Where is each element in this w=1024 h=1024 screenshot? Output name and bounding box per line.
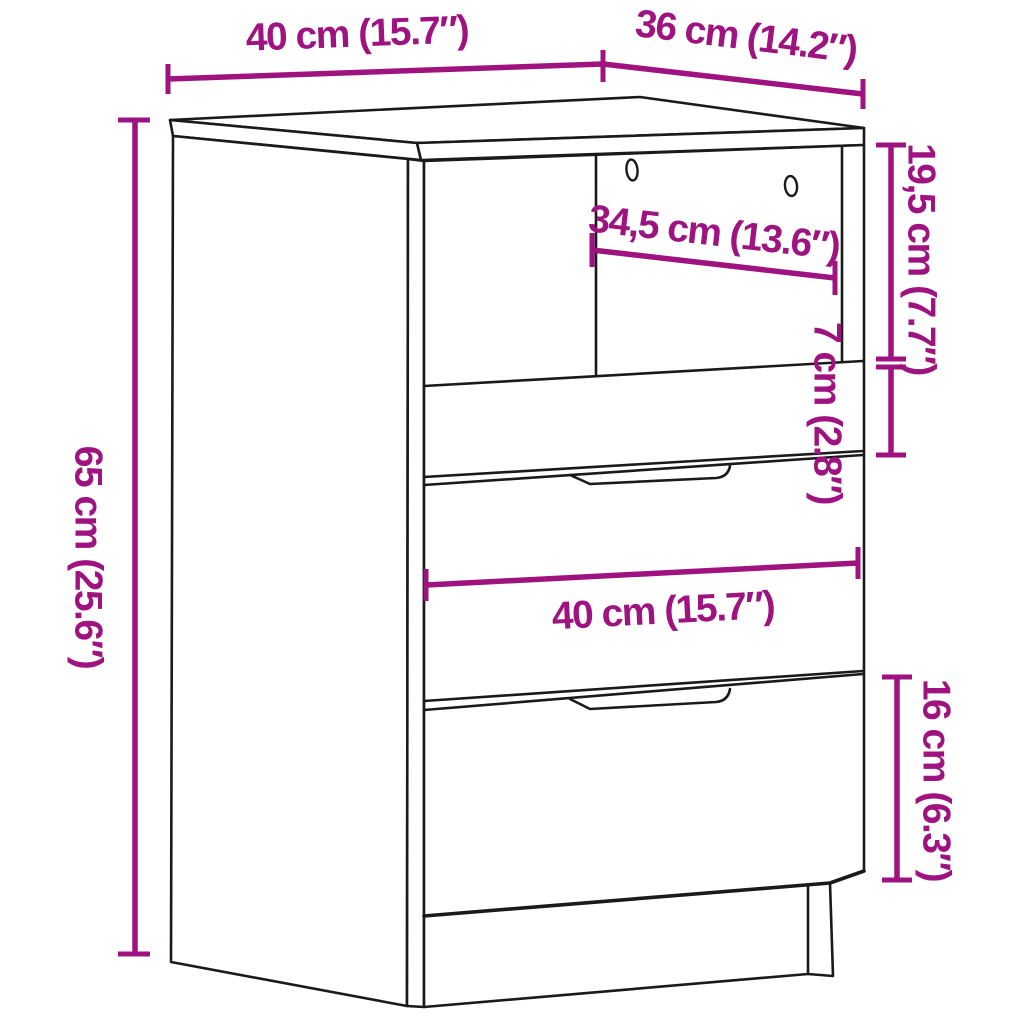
dim-label-bottom-drawer-height: 16 cm (6.3″) <box>915 679 958 882</box>
dim-label-top-depth: 36 cm (14.2″) <box>633 2 860 72</box>
cabinet-front-left-corner <box>407 159 424 1007</box>
screw-hole-right <box>784 175 798 196</box>
dim-label-small-drawer-height: 7 cm (2.8″) <box>806 322 849 505</box>
dim-label-top-width: 40 cm (15.7″) <box>245 8 469 60</box>
cabinet-side-panel <box>171 136 408 1006</box>
dimension-diagram: 40 cm (15.7″) 36 cm (14.2″) 65 cm (25.6″… <box>0 0 1024 1024</box>
cabinet-line-drawing: 40 cm (15.7″) 36 cm (14.2″) 65 cm (25.6″… <box>0 0 1024 1024</box>
dim-line-overall-height <box>118 120 150 954</box>
dim-line-small-drawer <box>876 367 906 455</box>
dim-label-overall-height: 65 cm (25.6″) <box>67 446 110 669</box>
dim-label-open-section-height: 19,5 cm (7.7″) <box>900 143 943 375</box>
dim-line-bottom-drawer <box>882 677 912 880</box>
dim-line-top-width <box>168 50 603 94</box>
